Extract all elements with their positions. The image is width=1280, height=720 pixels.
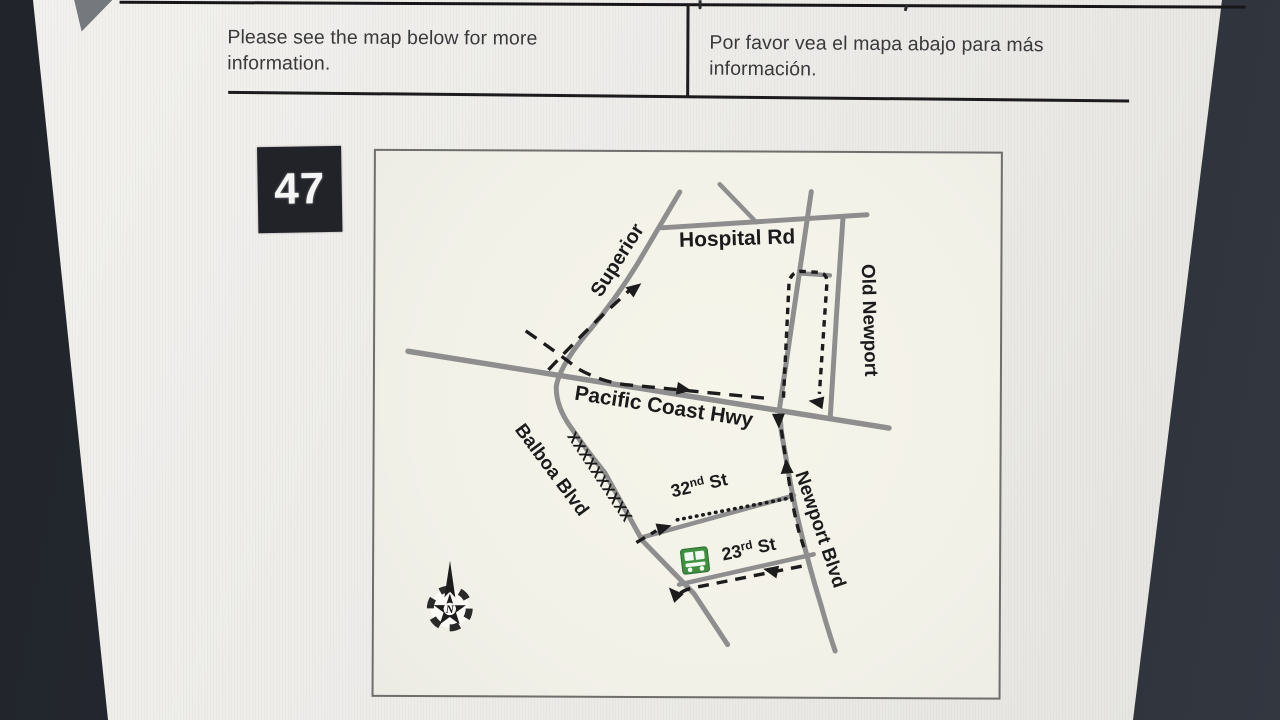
cropped-text-remnant bbox=[904, 4, 909, 12]
detour-dots-32nd bbox=[677, 498, 788, 520]
cropped-text-remnant bbox=[699, 0, 702, 9]
label-old-newport: Old Newport bbox=[857, 264, 881, 378]
label-23rd-st: 23rd St bbox=[720, 533, 778, 565]
label-23-st: St bbox=[751, 534, 778, 558]
road-old-newport bbox=[830, 217, 843, 418]
route-number: 47 bbox=[274, 164, 326, 215]
photographed-screen: Please see the map below for more inform… bbox=[0, 0, 1280, 720]
detour-map-canvas: Superior Hospital Rd Old Newport Pacific… bbox=[374, 151, 1001, 698]
road-pacific-coast-hwy bbox=[408, 351, 890, 428]
document-content: Please see the map below for more inform… bbox=[0, 0, 1280, 720]
bus-icon-background bbox=[680, 547, 710, 575]
label-hospital-rd: Hospital Rd bbox=[679, 225, 796, 252]
compass-north-letter: N bbox=[445, 604, 455, 616]
arrow-west-old-newport-return-icon bbox=[808, 394, 825, 409]
road-branch bbox=[719, 184, 756, 222]
notice-text-english: Please see the map below for more inform… bbox=[227, 25, 597, 78]
road-newport-upper bbox=[779, 191, 811, 408]
notice-text-spanish: Por favor vea el mapa abajo para más inf… bbox=[709, 31, 1089, 85]
bus-stop-icon bbox=[680, 547, 710, 575]
arrow-north-newport-icon bbox=[779, 458, 793, 474]
detour-map: Superior Hospital Rd Old Newport Pacific… bbox=[372, 149, 1003, 700]
roads bbox=[407, 183, 890, 651]
column-divider bbox=[686, 4, 689, 97]
label-32-st: St bbox=[703, 469, 730, 494]
compass-rose-icon: N bbox=[430, 561, 469, 628]
route-number-badge: 47 bbox=[257, 146, 342, 233]
table-top-border bbox=[120, 1, 1246, 9]
page-corner-artifact bbox=[73, 0, 114, 32]
row-bottom-rule bbox=[228, 91, 1129, 102]
label-32nd-st: 32nd St bbox=[669, 468, 730, 501]
